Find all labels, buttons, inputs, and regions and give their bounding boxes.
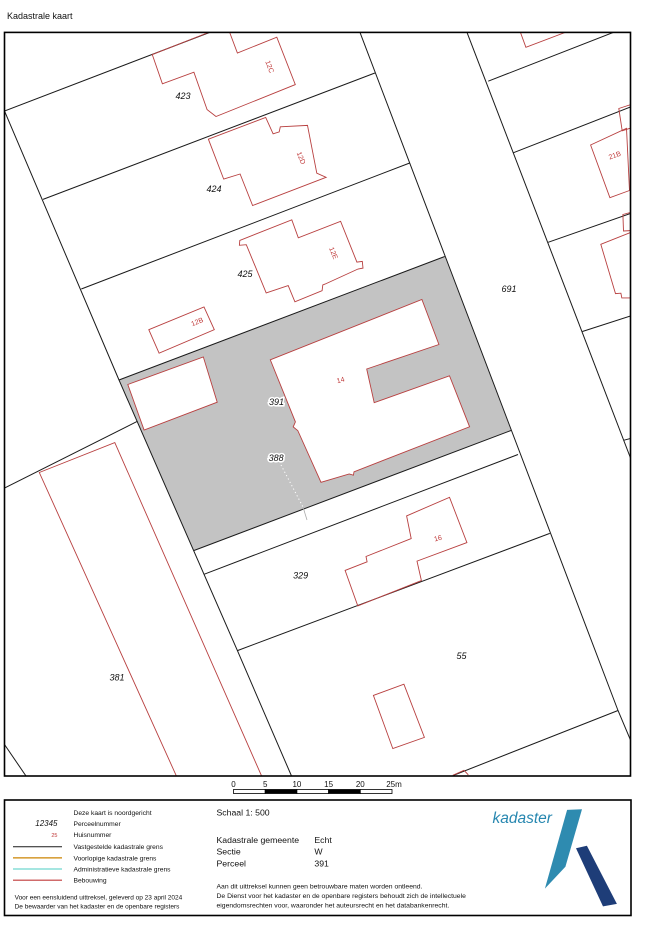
svg-text:Perceel: Perceel (217, 859, 247, 869)
svg-text:De bewaarder van het kadaster: De bewaarder van het kadaster en de open… (15, 903, 181, 910)
svg-text:381: 381 (109, 673, 124, 683)
svg-text:Aan dit uittreksel kunnen geen: Aan dit uittreksel kunnen geen betrouwba… (217, 884, 423, 891)
svg-text:Kadastrale gemeente: Kadastrale gemeente (217, 835, 300, 845)
svg-text:5: 5 (263, 780, 268, 789)
svg-text:kadaster: kadaster (493, 810, 553, 827)
svg-text:15: 15 (324, 780, 333, 789)
svg-text:0: 0 (231, 780, 236, 789)
svg-text:Vastgestelde kadastrale grens: Vastgestelde kadastrale grens (74, 844, 164, 851)
svg-text:425: 425 (237, 269, 253, 279)
svg-text:De Dienst voor het kadaster en: De Dienst voor het kadaster en de openba… (217, 893, 467, 900)
svg-text:424: 424 (206, 184, 221, 194)
svg-text:Kadastrale kaart: Kadastrale kaart (7, 11, 73, 21)
svg-text:eigendomsrechten voor, waarond: eigendomsrechten voor, waaronder het aut… (217, 903, 450, 910)
svg-text:W: W (314, 847, 323, 857)
svg-text:Voor een eensluidend uittrekse: Voor een eensluidend uittreksel, gelever… (15, 895, 183, 902)
svg-text:Administratieve kadastrale gre: Administratieve kadastrale grens (74, 867, 172, 874)
svg-text:20: 20 (356, 780, 365, 789)
svg-text:12345: 12345 (35, 819, 58, 828)
svg-text:55: 55 (456, 651, 467, 661)
svg-text:691: 691 (501, 284, 516, 294)
svg-text:25: 25 (51, 833, 57, 839)
svg-text:25m: 25m (386, 780, 402, 789)
svg-text:Echt: Echt (314, 835, 332, 845)
svg-text:423: 423 (175, 91, 190, 101)
svg-text:Bebouwing: Bebouwing (74, 878, 107, 885)
svg-text:391: 391 (314, 859, 329, 869)
svg-text:Schaal 1: 500: Schaal 1: 500 (217, 808, 270, 818)
svg-text:10: 10 (292, 780, 301, 789)
svg-text:Sectie: Sectie (217, 847, 241, 857)
svg-text:Voorlopige kadastrale grens: Voorlopige kadastrale grens (74, 855, 158, 862)
svg-text:391: 391 (269, 397, 284, 407)
svg-text:Huisnummer: Huisnummer (74, 832, 113, 839)
svg-text:Deze kaart is noordgericht: Deze kaart is noordgericht (74, 810, 152, 817)
svg-text:388: 388 (269, 453, 284, 463)
svg-text:Perceelnummer: Perceelnummer (74, 821, 122, 828)
svg-text:329: 329 (293, 571, 308, 581)
